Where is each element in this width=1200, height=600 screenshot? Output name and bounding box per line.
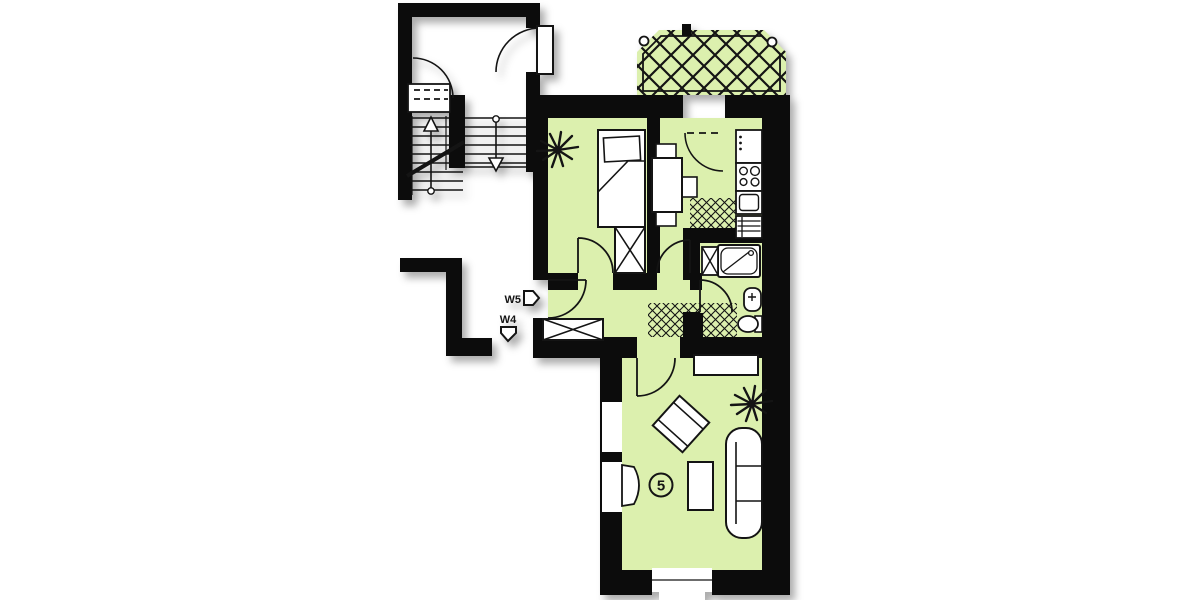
window-sill [659,588,705,600]
wall [548,273,578,290]
stair-divider-wall [449,95,465,168]
walkline-start-circle [428,188,434,194]
stair-landing-door-niche [408,84,450,112]
stair-up-arrow-icon [424,117,438,131]
wall [526,3,540,28]
wall [600,570,652,595]
sofa [726,428,762,538]
balcony-post [682,24,691,36]
door-label-w5: W5 [505,294,522,306]
wall [398,3,540,17]
floor-plan: W5 W4 [398,3,790,600]
wall [687,313,703,340]
chair [656,144,676,158]
washbasin [744,288,761,311]
balcony-lattice [637,30,786,95]
bath-cabinet [702,247,718,275]
radiator [736,216,762,238]
bed [598,130,645,227]
toilet [738,316,762,332]
window [652,568,712,600]
wall [533,95,683,118]
wall [683,228,700,280]
sideboard [694,355,758,375]
radiator-bay [622,465,639,506]
hall-wardrobe [543,319,603,340]
chair [656,212,676,226]
door-label-w4: W4 [500,314,517,326]
door-leaf [537,26,553,74]
w4-down-arrow-icon [501,327,516,341]
balcony [637,24,786,95]
floor-plan-page: W5 W4 [0,0,1200,600]
chair [682,177,697,197]
wall [446,338,492,356]
window [602,462,622,512]
coffee-table [688,462,713,510]
kitchen-counter [736,130,762,238]
balcony-corner-post [768,38,777,47]
bathtub [718,245,760,277]
door-swing-arc [496,28,540,72]
dining-table [652,158,682,212]
unit-number: 5 [657,478,665,495]
walkline-start-circle [493,116,499,122]
pillow [603,136,640,162]
wall [613,273,657,290]
floor-plan-canvas: W5 W4 [0,0,1200,600]
window [602,402,622,452]
worktop [736,130,762,163]
wall [712,570,790,595]
wardrobe [615,227,645,273]
balcony-corner-post [640,37,649,46]
stair-down-arrow-icon [489,158,503,171]
w5-right-arrow-icon [524,291,539,305]
wall [533,110,548,280]
